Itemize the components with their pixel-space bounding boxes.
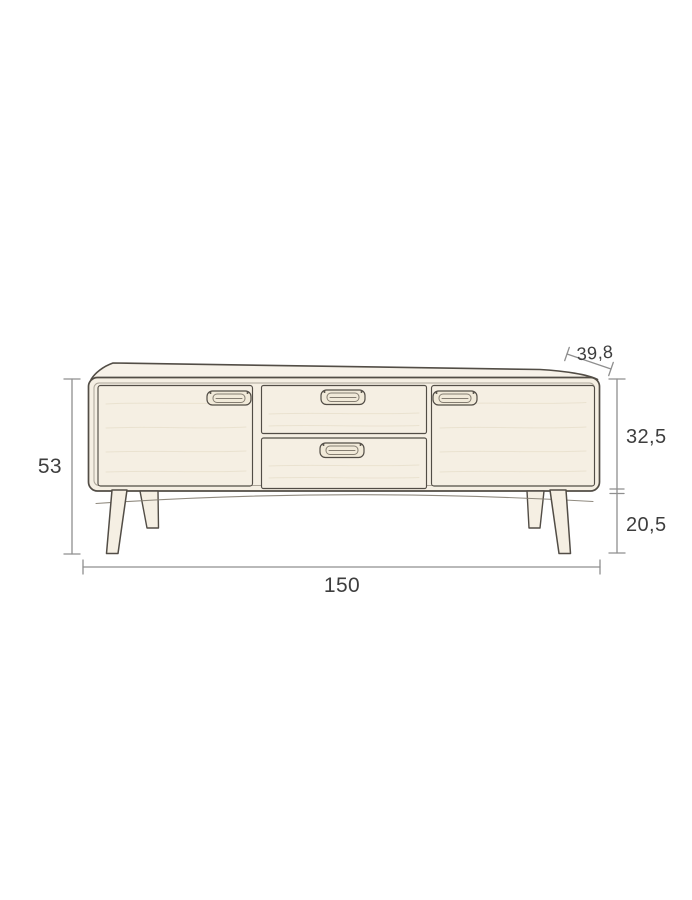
back-right-leg: [527, 491, 544, 528]
dimension-label-leg-height: 20,5: [626, 515, 676, 535]
right-door-handle: [433, 391, 477, 405]
front-right-leg: [550, 490, 571, 554]
dimension-diagram: 53 39,8 32,5 20,5 150: [0, 0, 692, 900]
bottom-drawer-handle: [320, 443, 364, 458]
dimension-label-height: 53: [34, 456, 62, 477]
dimension-line-width: [83, 560, 600, 574]
sideboard-illustration: [0, 0, 692, 900]
front-left-leg: [107, 490, 128, 554]
dimension-line-height: [64, 379, 80, 554]
dimension-label-body-height: 32,5: [626, 427, 676, 447]
dimension-label-width: 150: [310, 575, 374, 596]
back-left-leg: [140, 491, 159, 528]
dimension-line-body-and-legs: [609, 379, 625, 553]
left-door-handle: [207, 391, 251, 405]
top-drawer-handle: [321, 390, 365, 405]
apron-curve: [96, 495, 593, 504]
dimension-label-depth: 39,8: [567, 342, 622, 364]
sideboard: [89, 363, 600, 554]
